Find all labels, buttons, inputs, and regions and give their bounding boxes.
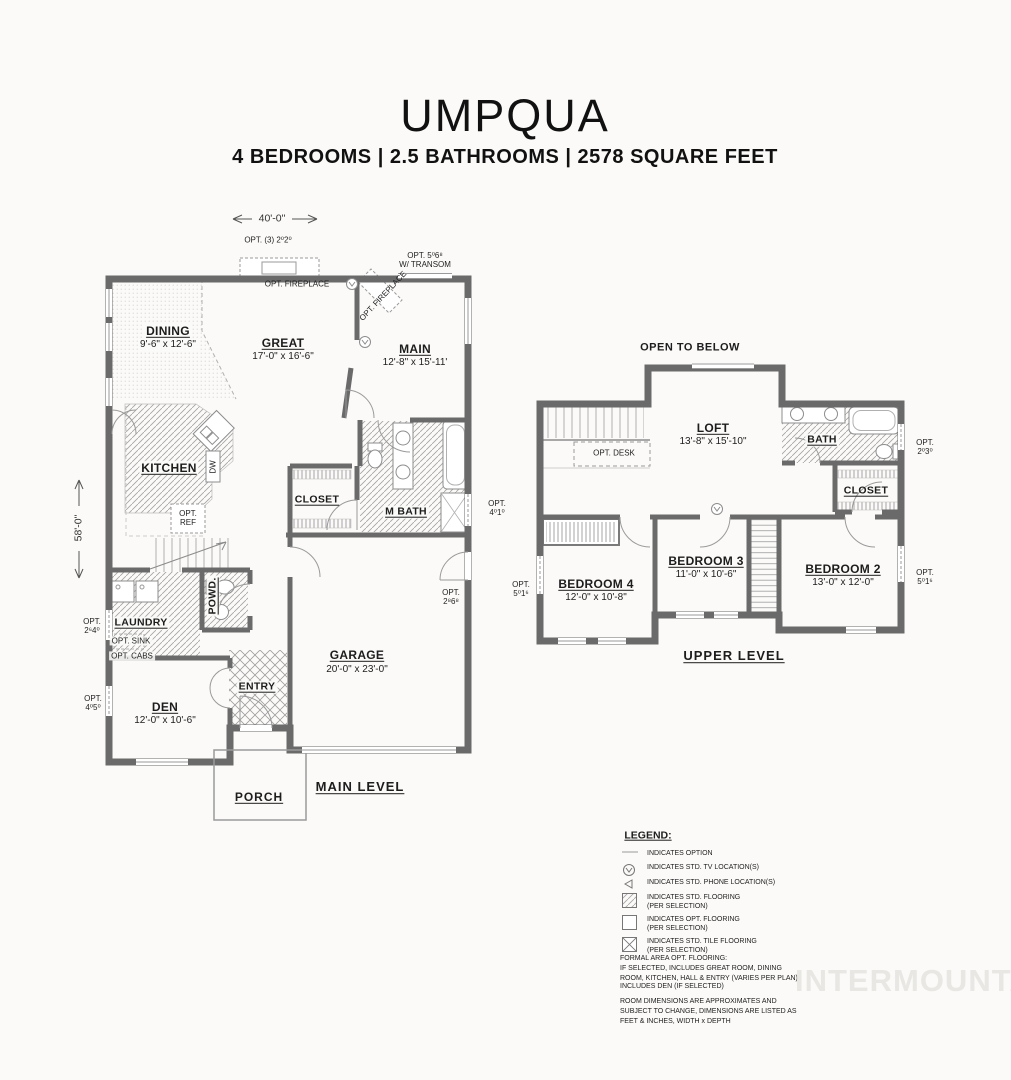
room-main-dims: 12'-8" x 15'-11' (383, 357, 448, 369)
room-powder: POWD. (207, 575, 220, 616)
opt-door-garage-label: OPT. 2⁸6⁸ (442, 588, 460, 606)
opt-window-laundry-label: OPT. 2⁶4⁰ (83, 617, 101, 635)
room-laundry: LAUNDRY (112, 617, 169, 630)
room-bedroom3-dims: 11'-0" x 10'-6" (676, 569, 737, 581)
sink-fixture (825, 408, 838, 421)
opt-window-upper-right-label: OPT. 5⁰1⁶ (916, 568, 934, 586)
tv-icon (712, 504, 723, 515)
room-den-dims: 12'-0" x 10'-6" (134, 715, 196, 727)
upper-level-label: UPPER LEVEL (683, 648, 784, 664)
plan-title: UMPQUA (400, 89, 610, 143)
room-mbath: M BATH (383, 506, 429, 519)
room-bedroom4: BEDROOM 4 (558, 577, 633, 591)
floor-plan-sheet: UMPQUA 4 BEDROOMS | 2.5 BATHROOMS | 2578… (0, 0, 1011, 1080)
room-great: GREAT (262, 336, 305, 350)
legend-item-option: INDICATES OPTION (622, 849, 713, 858)
linen-chase (750, 519, 778, 614)
dryer (136, 581, 158, 602)
opt-window-den-label: OPT. 4⁰5⁰ (84, 694, 102, 712)
opt-desk-label: OPT. DESK (593, 448, 635, 457)
washer (112, 581, 134, 602)
room-loft-dims: 13'-8" x 15'-10" (679, 436, 746, 448)
watermark: INTERMOUNTAIN (795, 963, 1011, 999)
toilet-fixture (876, 445, 892, 459)
overall-width-dimension: 40'-0" (259, 213, 286, 226)
room-entry: ENTRY (237, 681, 278, 694)
opt-ref-label: OPT. REF (179, 509, 197, 527)
open-to-below-label: OPEN TO BELOW (640, 341, 740, 354)
opt-fireplace-great (240, 258, 319, 276)
room-kitchen: KITCHEN (139, 461, 198, 475)
sink-fixture (396, 465, 410, 479)
room-bedroom2: BEDROOM 2 (805, 562, 880, 576)
opt-fireplace-great-label: OPT. FIREPLACE (265, 279, 329, 288)
legend-item-std-flooring: INDICATES STD. FLOORING(PER SELECTION) (622, 893, 740, 912)
opt-transom-door-label: OPT. 5⁰6⁸ W/ TRANSOM (399, 251, 451, 269)
opt-window-upper-bath-label: OPT. 2⁰3⁰ (916, 438, 934, 456)
room-upper-bath: BATH (805, 434, 839, 447)
tv-icon (347, 279, 358, 290)
sink-fixture (791, 408, 804, 421)
porch-label: PORCH (235, 790, 283, 804)
opt-cabs-label: OPT. CABS (109, 651, 155, 660)
room-closet: CLOSET (295, 494, 339, 507)
room-great-dims: 17'-0" x 16'-6" (252, 351, 314, 363)
room-bedroom4-dims: 12'-0" x 10'-8" (565, 592, 627, 604)
main-level-label: MAIN LEVEL (316, 779, 405, 795)
room-garage-dims: 20'-0" x 23'-0" (326, 664, 388, 676)
room-garage: GARAGE (330, 648, 384, 662)
legend-item-opt-flooring: INDICATES OPT. FLOORING(PER SELECTION) (622, 915, 740, 934)
opt-windows-label: OPT. (3) 2⁰2⁰ (244, 235, 291, 244)
room-loft: LOFT (697, 421, 730, 435)
room-upper-closet: CLOSET (844, 485, 888, 498)
room-dining: DINING (144, 324, 192, 338)
overall-depth-dimension: 58'-0" (73, 515, 86, 542)
room-main: MAIN (399, 342, 431, 356)
opt-sink-label: OPT. SINK (110, 636, 153, 645)
legend-item-tv: INDICATES STD. TV LOCATION(S) (622, 863, 759, 872)
legend-title: LEGEND: (624, 830, 671, 843)
room-bedroom2-dims: 13'-0" x 12'-0" (812, 577, 874, 589)
toilet-fixture (368, 450, 382, 468)
room-dining-dims: 9'-6" x 12'-6" (138, 339, 198, 351)
plan-subtitle: 4 BEDROOMS | 2.5 BATHROOMS | 2578 SQUARE… (232, 145, 778, 169)
sink-fixture (396, 431, 410, 445)
upper-stairs (542, 406, 644, 438)
dishwasher-label: DW (208, 460, 217, 473)
tub-fixture (849, 407, 899, 434)
legend-note-dimensions: ROOM DIMENSIONS ARE APPROXIMATES AND SUB… (620, 997, 830, 1026)
tv-icon (360, 337, 371, 348)
room-den: DEN (152, 700, 178, 714)
room-bedroom3: BEDROOM 3 (668, 554, 743, 568)
legend-item-phone: INDICATES STD. PHONE LOCATION(S) (622, 878, 775, 887)
opt-window-upper-left-label: OPT. 5⁰1⁶ (512, 580, 530, 598)
opt-window-mbath-label: OPT. 4⁰1⁰ (488, 499, 506, 517)
